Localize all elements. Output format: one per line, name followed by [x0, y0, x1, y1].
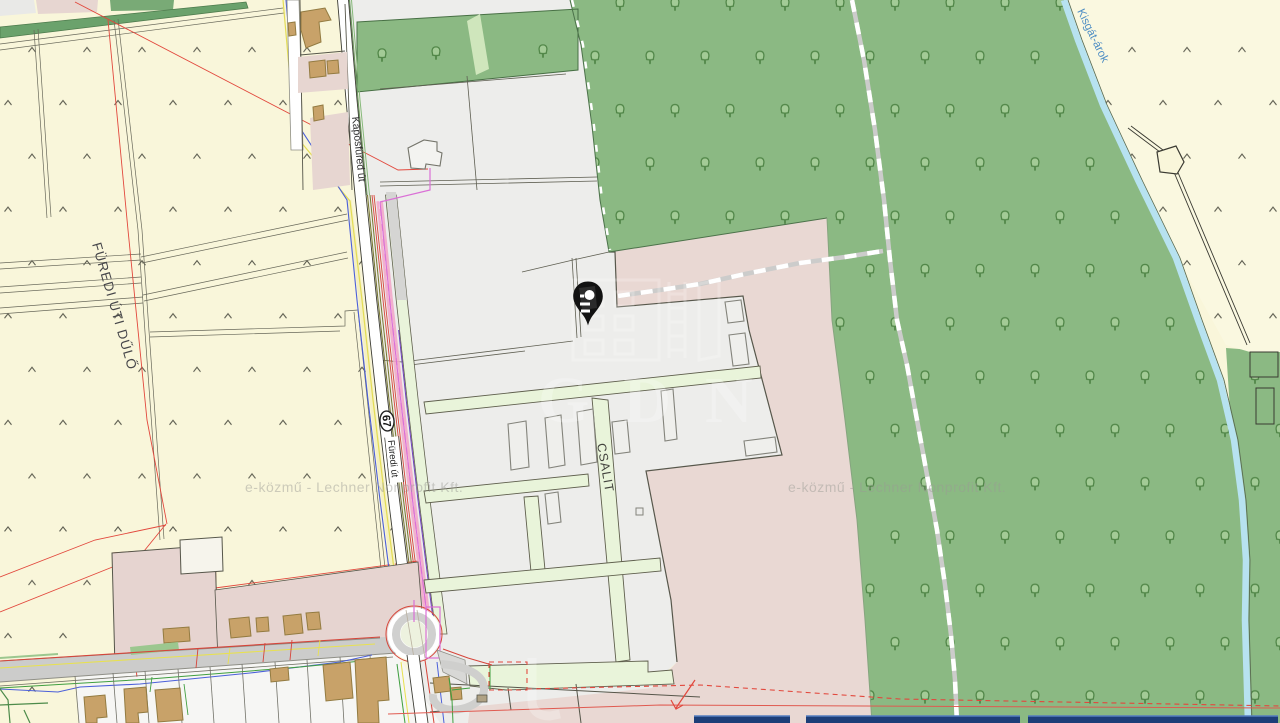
svg-text:GDN: GDN — [538, 364, 787, 437]
svg-text:e-közmű - Lechner Nonprofit Kf: e-közmű - Lechner Nonprofit Kft. — [788, 479, 1006, 495]
svg-text:67: 67 — [379, 414, 392, 427]
svg-text:e-közmű - Lechner Nonprofit Kf: e-közmű - Lechner Nonprofit Kft. — [245, 479, 463, 495]
